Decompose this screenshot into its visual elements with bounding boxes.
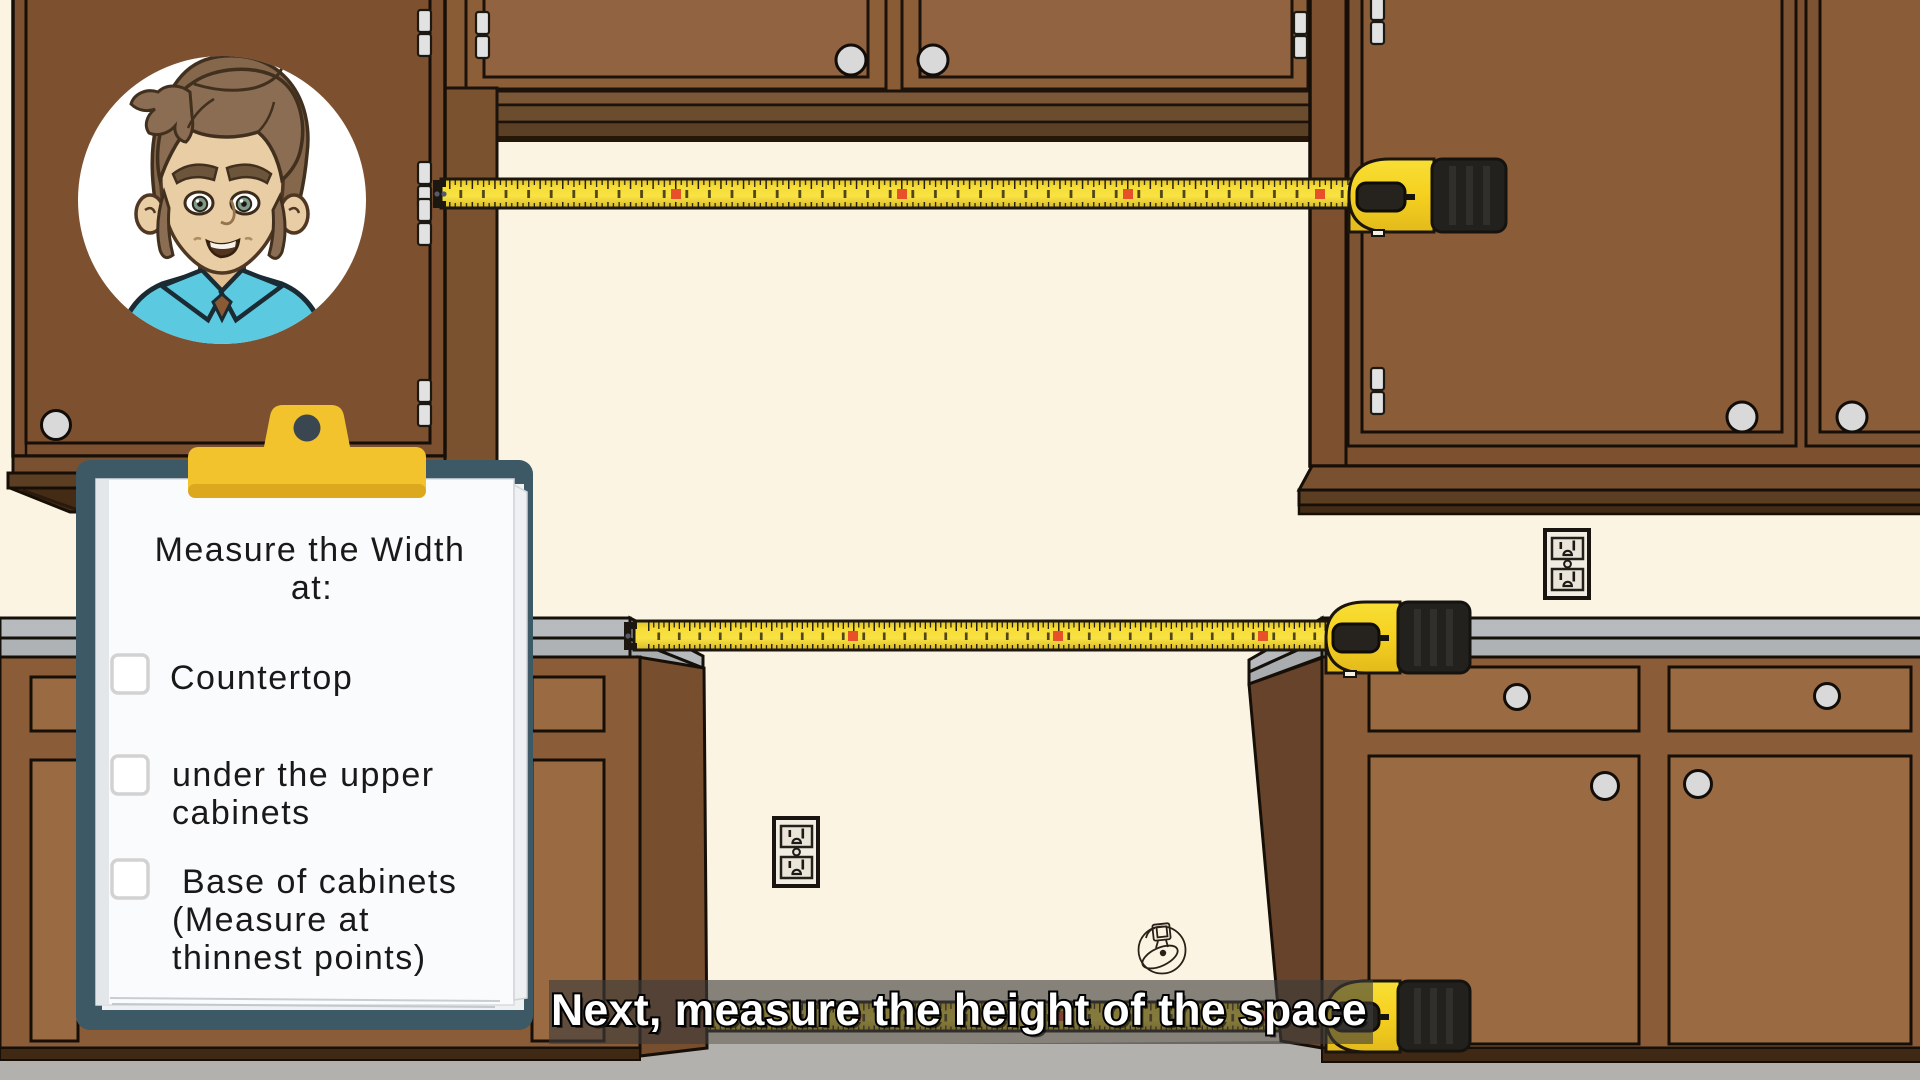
svg-text:cabinets: cabinets xyxy=(172,794,311,832)
svg-text:thinnest points): thinnest points) xyxy=(172,939,427,977)
svg-text:at:: at: xyxy=(291,569,333,607)
svg-text:under the upper: under the upper xyxy=(172,756,435,794)
svg-text:(Measure at: (Measure at xyxy=(172,901,370,939)
svg-text:Measure the Width: Measure the Width xyxy=(155,531,466,569)
svg-text:Base of cabinets: Base of cabinets xyxy=(182,863,457,901)
svg-text:Next, measure the height of th: Next, measure the height of the space xyxy=(551,986,1367,1035)
svg-text:Countertop: Countertop xyxy=(170,659,353,697)
